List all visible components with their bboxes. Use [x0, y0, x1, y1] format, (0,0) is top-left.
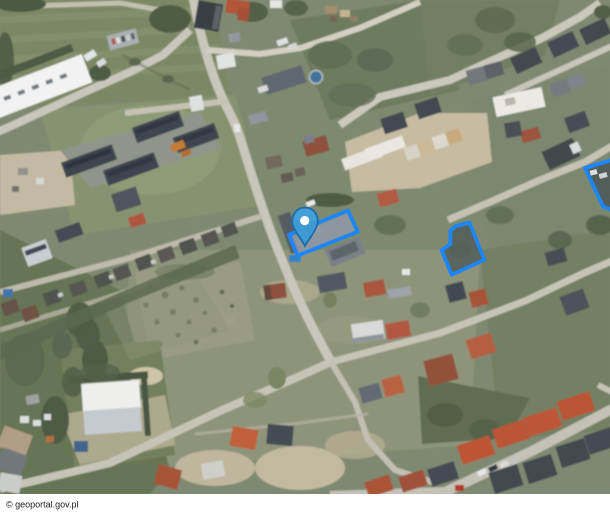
svg-text:© geoportal.gov.pl: © geoportal.gov.pl	[6, 500, 79, 510]
